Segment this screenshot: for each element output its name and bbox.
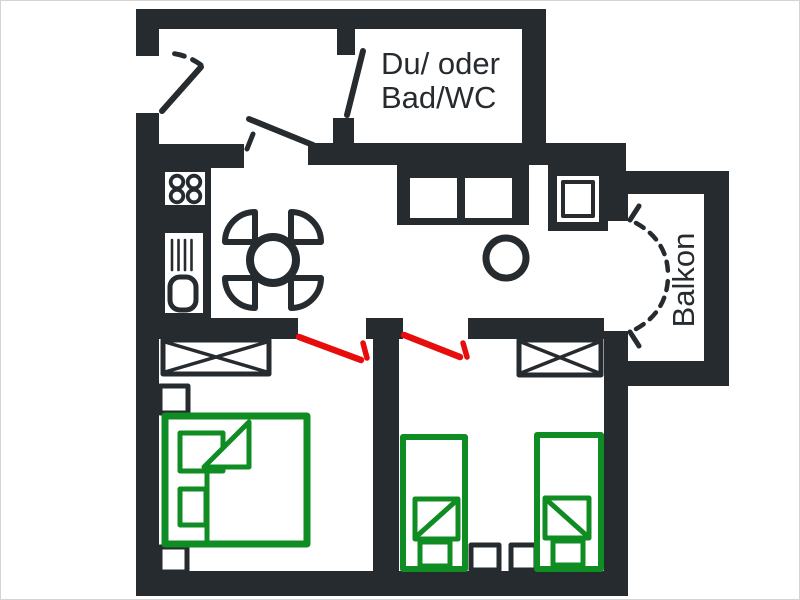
balcony-door-hinge-bottom (630, 332, 639, 346)
wall-right-lower (604, 331, 628, 596)
bed-3-foot (553, 541, 583, 565)
balcony-door-arc-bottom (636, 275, 668, 329)
stove-burner-2 (188, 176, 201, 189)
wall-bedrooms-top-stub (366, 318, 403, 339)
wall-bedroom-divider (373, 339, 399, 576)
wall-balcony-top (604, 171, 729, 194)
stove-burner-1 (171, 176, 184, 189)
nightstand-1 (160, 386, 188, 413)
entry-door-leaf (162, 67, 201, 111)
wall-top (136, 9, 546, 29)
entry-door-swing-arc (168, 53, 201, 65)
bedroom-1-door-tick (363, 343, 367, 358)
wall-balcony-bottom (628, 361, 729, 386)
nightstand-2 (160, 547, 187, 572)
dining-chair-sw (225, 278, 255, 308)
bathroom-door-leaf (347, 51, 363, 115)
dining-chair-ne (291, 212, 321, 242)
sofa-cushion-left (410, 178, 457, 218)
wall-hall-kitchen-divider (136, 144, 244, 168)
wall-bedrooms-top-left (156, 318, 298, 339)
floorplan-image: Du/ oder Bad/WC Balkon (0, 0, 800, 600)
bedroom-2-door-tick (463, 343, 467, 357)
sofa-cushion-right (465, 178, 512, 218)
bathroom-label-line1: Du/ oder (381, 47, 500, 81)
wall-left-main (136, 113, 159, 596)
balcony-label: Balkon (667, 220, 701, 340)
wall-bathroom-left-stub-top (337, 29, 355, 55)
nightstand-3 (471, 545, 499, 570)
side-table (486, 238, 526, 278)
bathroom-label-line2: Bad/WC (381, 81, 500, 115)
hall-door-swing-tick (247, 134, 253, 149)
stove-burner-4 (188, 190, 201, 203)
hall-door-leaf (249, 119, 313, 145)
bedroom-1-door-leaf (299, 337, 361, 360)
bathroom-label: Du/ oder Bad/WC (381, 47, 500, 115)
balcony-door-arc-top (636, 223, 668, 275)
wall-balcony-right (704, 194, 729, 386)
wall-bathroom-left-stub-bottom (333, 118, 354, 145)
armchair-seat (563, 182, 593, 216)
balcony-door-hinge-top (630, 206, 639, 220)
dining-chair-nw (225, 212, 255, 242)
wall-bedrooms-top-right (468, 318, 604, 339)
dining-table (250, 237, 296, 283)
bed-2-foot (420, 542, 450, 566)
wall-bathroom-right (522, 29, 546, 145)
bedroom-2-door-leaf (404, 335, 460, 357)
stove-burner-3 (171, 190, 184, 203)
nightstand-4 (511, 545, 536, 570)
dining-chair-se (291, 278, 321, 308)
sink-basin (170, 277, 196, 310)
wall-left-upper (136, 9, 159, 56)
bed-1-pillow-bottom (180, 489, 206, 525)
